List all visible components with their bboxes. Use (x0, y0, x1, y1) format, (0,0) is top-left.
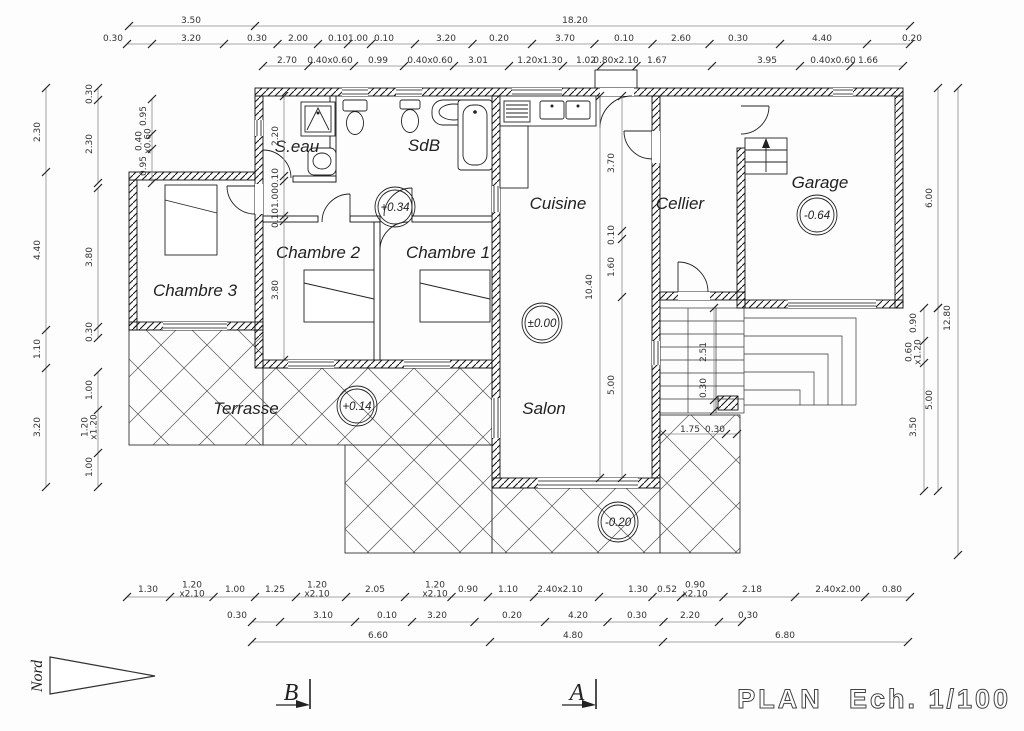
french-window (538, 478, 638, 488)
dim-label: x2.10 (179, 590, 205, 600)
dim-label: 2.20 (271, 126, 281, 146)
dim-label: 1.60 (607, 257, 617, 277)
dim-label: 0.20 (502, 611, 522, 621)
door-arc (624, 131, 652, 159)
room-label-salon: Salon (522, 399, 565, 418)
section-marker-b: B (276, 679, 310, 709)
dim-label: x1.20 (90, 414, 100, 440)
dim-label: x2.10 (304, 590, 330, 600)
door-arc (322, 194, 350, 222)
bed (420, 270, 490, 322)
svg-text:-0.20: -0.20 (605, 517, 632, 529)
window (404, 360, 450, 368)
dim-label: 3.80 (271, 280, 281, 300)
dim-label: 0.40x0.60 (407, 56, 453, 66)
dim-chain-right-lower: 5.00 (925, 304, 942, 495)
window (396, 88, 422, 96)
svg-text:-0.64: -0.64 (804, 210, 830, 222)
dim-chain-center-total: 10.40 (585, 92, 604, 482)
dim-label: 0.40x0.60 (810, 56, 856, 66)
dim-label: 3.20 (181, 34, 201, 44)
dim-label: 3.70 (607, 153, 617, 173)
window (492, 186, 500, 212)
dim-label: 6.60 (368, 631, 388, 641)
dim-label: 0.10 (614, 34, 634, 44)
dim-label: 1.00 (348, 34, 368, 44)
north-arrow: Nord (29, 657, 155, 694)
front-door-opening (600, 88, 634, 96)
dim-label: 0.99 (368, 56, 388, 66)
dim-chain-right-outer: 12.80 (943, 84, 962, 559)
dim-label: 5.00 (607, 375, 617, 395)
dim-label: x1.20 (914, 339, 924, 365)
dim-label: 2.51 (699, 342, 709, 362)
dim-label: 2.20 (680, 611, 700, 621)
window (652, 341, 660, 365)
dim-label: 0.10 (377, 611, 397, 621)
dim-label: 0.30 (728, 34, 748, 44)
dim-label: 18.20 (562, 16, 588, 26)
hall-door-opening (255, 184, 263, 214)
dim-chain-right-garage: 6.00 (925, 84, 942, 312)
window (288, 360, 334, 368)
door-arc (227, 186, 255, 214)
dim-chain-left-inner-c: 1.001.20x1.201.00 (81, 368, 103, 491)
dim-label: 2.70 (277, 56, 297, 66)
dim-label: 0.30 (103, 34, 123, 44)
north-label: Nord (29, 659, 46, 693)
dim-label: 0.20 (902, 34, 922, 44)
dim-label: x2.10 (682, 590, 708, 600)
svg-text:+0.34: +0.34 (380, 202, 409, 214)
french-window (163, 322, 227, 330)
dim-label: 4.40 (812, 34, 832, 44)
level-marker: -0.64 (797, 195, 837, 235)
level-marker: ±0.00 (522, 303, 562, 343)
dim-label: 2.18 (742, 585, 762, 595)
section-arrow-icon (296, 700, 310, 708)
garage-steps (745, 138, 787, 174)
stair-pillar (718, 396, 738, 410)
dim-chain-left-outer: 2.304.401.103.20 (33, 84, 50, 491)
toilet (400, 100, 420, 133)
dim-label: 6.00 (925, 188, 935, 208)
door-arc (380, 222, 408, 250)
dim-label: 0.30 (738, 611, 758, 621)
dim-label: 0.30 (247, 34, 267, 44)
dim-label: 2.40x2.00 (815, 585, 861, 595)
section-marker-a: A (562, 679, 596, 709)
window (255, 120, 263, 136)
dim-label: 0.30 (85, 84, 95, 104)
dim-label: 3.50 (181, 16, 201, 26)
title-plan: PLAN (737, 684, 823, 714)
dim-label: 0.95 (139, 156, 149, 176)
dim-label: 2.60 (671, 34, 691, 44)
dim-chain-bottom-openings: 1.301.20x2.101.001.251.20x2.102.051.20x2… (123, 581, 914, 602)
kitchen-counter (500, 126, 528, 188)
dim-label: 1.25 (265, 585, 285, 595)
bed (165, 185, 217, 255)
svg-text:+0.14: +0.14 (342, 401, 371, 413)
dim-label: 0.80x2.10 (593, 56, 639, 66)
dim-label: 1.00 (85, 380, 95, 400)
entry-porch (595, 70, 637, 88)
dim-label: 1.30 (628, 585, 648, 595)
dim-chain-bottom-totals: 6.604.806.80 (248, 631, 912, 646)
dim-label: 4.20 (568, 611, 588, 621)
bathtub (458, 100, 492, 170)
dim-label: 2.00 (288, 34, 308, 44)
dim-label: 3.01 (468, 56, 488, 66)
room-label-cellier: Cellier (656, 194, 706, 213)
cellier-door-opening (652, 131, 660, 163)
dim-chain-hall: 2.200.101.000.103.80 (271, 92, 288, 364)
dim-label: 1.10 (33, 339, 43, 359)
dim-label: 3.20 (33, 417, 43, 437)
window (492, 398, 500, 438)
kitchen-fixtures (500, 96, 596, 188)
window (512, 88, 562, 96)
dim-label: 0.10 (607, 225, 617, 245)
north-arrow-icon (50, 657, 155, 694)
dim-label: 2.30 (85, 134, 95, 154)
dim-label: 1.20x1.30 (517, 56, 563, 66)
dim-label: 0.80 (882, 585, 902, 595)
dim-label: 3.95 (757, 56, 777, 66)
dim-label: 0.95 (139, 106, 149, 126)
room-label-seau: S.eau (275, 137, 320, 156)
dim-label: 0.52 (657, 585, 677, 595)
dim-label: x2.10 (422, 590, 448, 600)
dim-label: 0.30 (227, 611, 247, 621)
dim-label: 1.00 (271, 188, 281, 208)
dim-chain-top-walls: 0.303.200.302.000.101.000.103.200.203.70… (103, 34, 922, 48)
dim-label: 0.40x0.60 (307, 56, 353, 66)
dim-label: 0.30 (699, 378, 709, 398)
bed (304, 270, 374, 322)
dim-label: 0.20 (489, 34, 509, 44)
room-label-garage: Garage (792, 173, 849, 192)
door-arc (741, 106, 769, 134)
dim-chain-top-openings: 2.700.40x0.600.990.40x0.603.011.20x1.301… (259, 56, 907, 70)
room-label-cuisine: Cuisine (530, 194, 587, 213)
room-label-sdb: SdB (408, 136, 440, 155)
room-label-terrasse: Terrasse (213, 399, 279, 418)
dim-chain-left-inner-a: 0.302.30 (85, 84, 102, 187)
window (833, 88, 853, 96)
section-arrow-icon (582, 700, 596, 708)
dim-label: 4.80 (563, 631, 583, 641)
dim-label: 0.30 (85, 322, 95, 342)
dim-label: 2.40x2.10 (537, 585, 583, 595)
dim-label: 3.50 (909, 417, 919, 437)
dim-label: 1.75 (680, 425, 700, 435)
toilet (343, 100, 367, 135)
dim-label: 1.67 (647, 56, 667, 66)
level-marker: +0.34 (375, 187, 415, 227)
dim-label: 12.80 (943, 305, 953, 331)
dim-chain-bottom-walls: 0.303.100.103.200.204.200.302.200.30 (227, 611, 758, 626)
room-label-chambre1: Chambre 1 (406, 243, 490, 262)
floor-plan-page: S.eau SdB Cuisine Cellier Garage Chambre… (0, 0, 1024, 731)
dim-label: 0.10 (328, 34, 348, 44)
title-scale: Ech. 1/100 (849, 684, 1011, 714)
dim-label: 5.00 (925, 390, 935, 410)
dim-label: 0.10 (374, 34, 394, 44)
dim-label: 1.66 (858, 56, 878, 66)
dim-label: 3.20 (427, 611, 447, 621)
dim-label: 0.30 (627, 611, 647, 621)
shower (301, 102, 335, 136)
door-arc (600, 96, 632, 128)
dim-label: 3.10 (313, 611, 333, 621)
dim-label: 1.30 (138, 585, 158, 595)
dim-label: 0.90 (458, 585, 478, 595)
garage-door (788, 300, 876, 308)
dim-label: 0.90 (909, 313, 919, 333)
cellier-south-door-opening (678, 292, 710, 300)
dim-chain-center: 3.700.101.605.00 (607, 92, 626, 482)
drawing-title: PLAN Ech. 1/100 (737, 684, 1011, 714)
dim-label: 3.80 (85, 247, 95, 267)
room-label-chambre3: Chambre 3 (153, 281, 238, 300)
door-arc (678, 262, 708, 292)
exterior-stair-landing (660, 308, 856, 413)
window (342, 88, 368, 96)
dim-label: 1.00 (225, 585, 245, 595)
dim-label: 1.10 (498, 585, 518, 595)
dim-label: 1.00 (85, 457, 95, 477)
dim-label: 10.40 (585, 274, 595, 300)
dim-chain-top-overall: 3.5018.20 (125, 16, 914, 30)
dim-label: x0.60 (144, 128, 154, 154)
dim-label: 3.20 (436, 34, 456, 44)
dim-label: 2.30 (33, 122, 43, 142)
floor-plan-drawing: S.eau SdB Cuisine Cellier Garage Chambre… (0, 0, 1024, 731)
room-label-chambre2: Chambre 2 (276, 243, 361, 262)
dim-label: 6.80 (775, 631, 795, 641)
dim-label: 2.05 (365, 585, 385, 595)
dim-label: 0.10 (271, 208, 281, 228)
svg-text:±0.00: ±0.00 (528, 318, 557, 330)
dim-chain-left-inner-b: 3.800.30 (85, 184, 102, 342)
dim-label: 4.40 (33, 240, 43, 260)
dim-label: 0.30 (705, 425, 725, 435)
dim-label: 0.10 (271, 168, 281, 188)
dim-label: 3.70 (555, 34, 575, 44)
